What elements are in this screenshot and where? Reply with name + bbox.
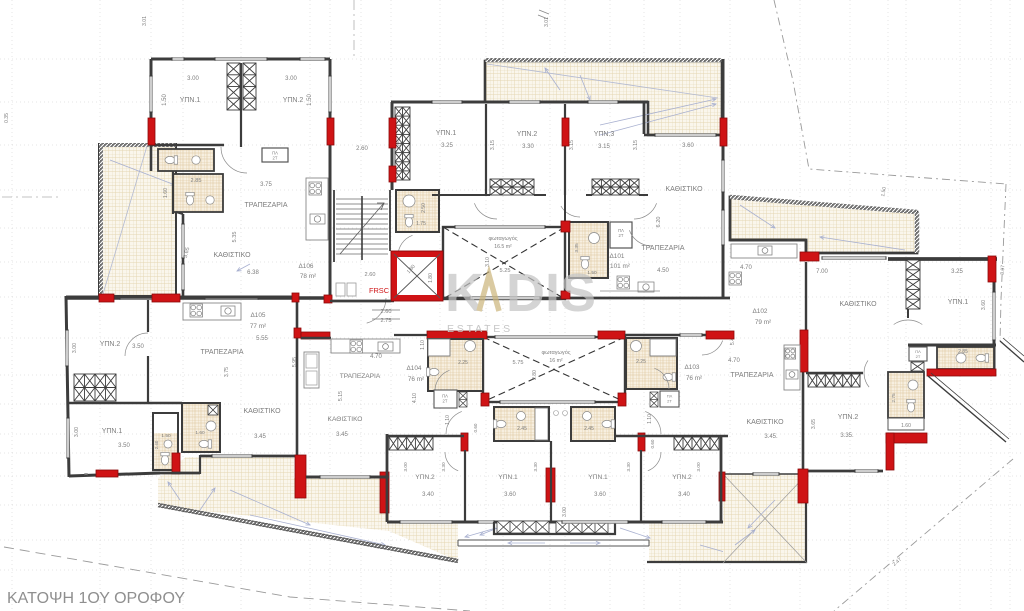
svg-text:5.55: 5.55 (256, 336, 268, 342)
svg-text:ΥΠΝ.2: ΥΠΝ.2 (838, 414, 859, 421)
svg-text:φωταγωγός: φωταγωγός (541, 349, 570, 356)
svg-text:4.70: 4.70 (740, 265, 752, 271)
svg-text:ΤΡΑΠΕΖΑΡΙΑ: ΤΡΑΠΕΖΑΡΙΑ (340, 373, 381, 380)
svg-text:φωταγωγός: φωταγωγός (488, 235, 517, 242)
svg-text:6.38: 6.38 (247, 270, 259, 276)
svg-text:3.30: 3.30 (626, 462, 632, 472)
svg-text:3.15: 3.15 (598, 144, 610, 150)
svg-text:3.15: 3.15 (490, 140, 496, 150)
svg-text:ΥΠΝ.1: ΥΠΝ.1 (180, 97, 201, 104)
svg-text:3.25: 3.25 (441, 143, 453, 149)
svg-text:4.70: 4.70 (370, 354, 382, 360)
svg-text:ΥΠΝ.2: ΥΠΝ.2 (517, 131, 538, 138)
svg-text:16 m²: 16 m² (549, 358, 563, 364)
svg-text:ΚΑΘΙΣΤΙΚΟ: ΚΑΘΙΣΤΙΚΟ (213, 252, 251, 259)
svg-text:3.60: 3.60 (594, 492, 606, 498)
svg-text:2.25: 2.25 (636, 359, 646, 365)
svg-text:3.60: 3.60 (682, 143, 694, 149)
svg-text:77 m²: 77 m² (250, 323, 266, 330)
svg-text:ΤΡΑΠΕΖΑΡΙΑ: ΤΡΑΠΕΖΑΡΙΑ (200, 349, 243, 356)
svg-text:3.45: 3.45 (254, 434, 266, 440)
svg-text:1.60: 1.60 (163, 188, 169, 198)
svg-text:5.75: 5.75 (513, 360, 524, 366)
svg-text:6.20: 6.20 (656, 217, 662, 228)
svg-text:Δ106: Δ106 (299, 263, 314, 270)
svg-text:3.35.: 3.35. (840, 433, 854, 439)
svg-text:Δ103: Δ103 (685, 364, 700, 371)
svg-text:3.30: 3.30 (533, 462, 539, 472)
svg-text:0.35: 0.35 (4, 113, 10, 123)
svg-text:0.60: 0.60 (473, 423, 478, 432)
svg-text:ΥΠΝ.2: ΥΠΝ.2 (283, 97, 304, 104)
svg-text:1.50: 1.50 (162, 94, 168, 106)
svg-text:ΚΑΘΙΣΤΙΚΟ: ΚΑΘΙΣΤΙΚΟ (839, 301, 877, 308)
svg-text:2Τ: 2Τ (916, 354, 921, 359)
svg-text:3.01: 3.01 (142, 16, 148, 26)
svg-text:2.85: 2.85 (958, 349, 968, 355)
svg-text:4.50: 4.50 (657, 268, 669, 274)
svg-text:2Τ: 2Τ (443, 399, 448, 404)
svg-text:2.25: 2.25 (458, 360, 468, 366)
svg-text:3.60: 3.60 (504, 492, 516, 498)
svg-text:0.60: 0.60 (650, 439, 655, 448)
svg-text:ΥΠΝ.3: ΥΠΝ.3 (594, 131, 615, 138)
svg-text:2.80: 2.80 (532, 370, 538, 380)
svg-text:78 m²: 78 m² (300, 273, 316, 280)
svg-text:5.15: 5.15 (338, 391, 344, 401)
svg-text:1.50: 1.50 (307, 94, 313, 106)
svg-text:Δ104: Δ104 (407, 365, 422, 372)
svg-text:ΤΡΑΠΕΖΑΡΙΑ: ΤΡΑΠΕΖΑΡΙΑ (244, 202, 287, 209)
svg-text:7.00: 7.00 (816, 269, 828, 275)
svg-text:1.60: 1.60 (901, 423, 911, 429)
svg-text:ΤΡΑΠΕΖΑΡΙΑ: ΤΡΑΠΕΖΑΡΙΑ (730, 372, 773, 379)
svg-text:2.40: 2.40 (154, 440, 159, 449)
svg-text:3.45.: 3.45. (764, 434, 778, 440)
svg-text:101 m²: 101 m² (610, 263, 630, 270)
svg-text:3.07: 3.07 (1000, 265, 1007, 275)
svg-text:2.60: 2.60 (365, 272, 376, 278)
svg-text:2.75: 2.75 (891, 393, 897, 403)
svg-text:3.15: 3.15 (633, 140, 639, 150)
svg-text:3.60: 3.60 (981, 300, 987, 310)
svg-text:ΥΠΝ.2: ΥΠΝ.2 (415, 474, 435, 481)
svg-text:Δ101: Δ101 (610, 253, 625, 260)
svg-text:1.80: 1.80 (428, 273, 434, 283)
svg-text:ΤΡΑΠΕΖΑΡΙΑ: ΤΡΑΠΕΖΑΡΙΑ (641, 245, 684, 252)
svg-text:DIS: DIS (506, 263, 596, 323)
svg-text:5.35: 5.35 (232, 232, 238, 243)
svg-text:1.75: 1.75 (416, 221, 426, 227)
svg-text:4.70: 4.70 (728, 358, 740, 364)
svg-text:16.5 m²: 16.5 m² (494, 244, 512, 250)
svg-text:3.30: 3.30 (441, 462, 447, 472)
svg-text:3.50: 3.50 (118, 443, 130, 449)
svg-text:1.10: 1.10 (445, 415, 451, 425)
svg-text:3.15: 3.15 (569, 140, 575, 150)
svg-text:ΥΠΝ.1: ΥΠΝ.1 (948, 299, 969, 306)
svg-text:3.65: 3.65 (397, 140, 403, 150)
svg-text:1.50: 1.50 (161, 433, 171, 439)
svg-text:ΚΑΘΙΣΤΙΚΟ: ΚΑΘΙΣΤΙΚΟ (243, 408, 281, 415)
svg-text:2Τ: 2Τ (667, 399, 672, 404)
svg-text:76 m²: 76 m² (408, 376, 424, 383)
svg-text:3.00: 3.00 (187, 76, 199, 82)
svg-text:K: K (445, 263, 484, 323)
svg-text:ΥΠΝ.2: ΥΠΝ.2 (672, 474, 692, 481)
svg-text:79 m²: 79 m² (755, 319, 771, 326)
svg-text:ΚΑΤΟΨΗ 1ΟΥ ΟΡΟΦΟΥ: ΚΑΤΟΨΗ 1ΟΥ ΟΡΟΦΟΥ (7, 590, 185, 607)
svg-text:3.00: 3.00 (562, 507, 568, 517)
svg-text:Δ105: Δ105 (251, 312, 266, 319)
svg-text:3.30: 3.30 (522, 144, 534, 150)
svg-text:1.10: 1.10 (420, 340, 426, 350)
svg-text:76 m²: 76 m² (686, 375, 702, 382)
svg-text:3.65: 3.65 (811, 419, 817, 429)
svg-text:3.35: 3.35 (574, 243, 580, 253)
svg-text:3.75: 3.75 (224, 367, 230, 377)
svg-text:ΥΠΝ.1: ΥΠΝ.1 (102, 428, 123, 435)
svg-text:3.00: 3.00 (72, 343, 78, 353)
svg-text:3.45: 3.45 (336, 432, 348, 438)
svg-text:3.10: 3.10 (485, 257, 491, 267)
svg-text:4.10: 4.10 (412, 393, 418, 403)
svg-text:3.40: 3.40 (678, 492, 690, 498)
svg-text:3.25: 3.25 (951, 269, 963, 275)
svg-text:3.50: 3.50 (132, 344, 144, 350)
svg-text:ΚΑΘΙΣΤΙΚΟ: ΚΑΘΙΣΤΙΚΟ (328, 416, 363, 423)
svg-text:1.60: 1.60 (195, 430, 205, 436)
svg-text:2Τ: 2Τ (619, 233, 624, 238)
svg-text:2.45: 2.45 (517, 426, 527, 432)
svg-text:Δ102: Δ102 (753, 308, 768, 315)
svg-text:ΥΠΝ.1: ΥΠΝ.1 (498, 474, 518, 481)
svg-text:ΥΠΝ.2: ΥΠΝ.2 (100, 341, 121, 348)
svg-text:ΚΑΘΙΣΤΙΚΟ: ΚΑΘΙΣΤΙΚΟ (665, 186, 703, 193)
svg-text:ΥΠΝ.1: ΥΠΝ.1 (588, 474, 608, 481)
svg-text:2Τ: 2Τ (273, 156, 278, 161)
svg-text:3.00: 3.00 (74, 427, 80, 437)
svg-text:ΚΑΘΙΣΤΙΚΟ: ΚΑΘΙΣΤΙΚΟ (746, 419, 784, 426)
svg-text:2.45: 2.45 (584, 426, 594, 432)
svg-text:2.85: 2.85 (191, 178, 202, 184)
svg-text:3.00: 3.00 (403, 462, 409, 472)
svg-text:3.00: 3.00 (285, 76, 297, 82)
svg-text:2.60: 2.60 (356, 146, 368, 152)
svg-text:ΥΠΝ.1: ΥΠΝ.1 (436, 130, 457, 137)
svg-text:3.75: 3.75 (260, 182, 272, 188)
svg-text:2.50: 2.50 (421, 203, 427, 213)
svg-text:FRSC: FRSC (369, 286, 390, 295)
svg-text:ESTATES: ESTATES (447, 323, 513, 335)
svg-text:3.40: 3.40 (422, 492, 434, 498)
svg-text:3.00: 3.00 (696, 462, 702, 472)
